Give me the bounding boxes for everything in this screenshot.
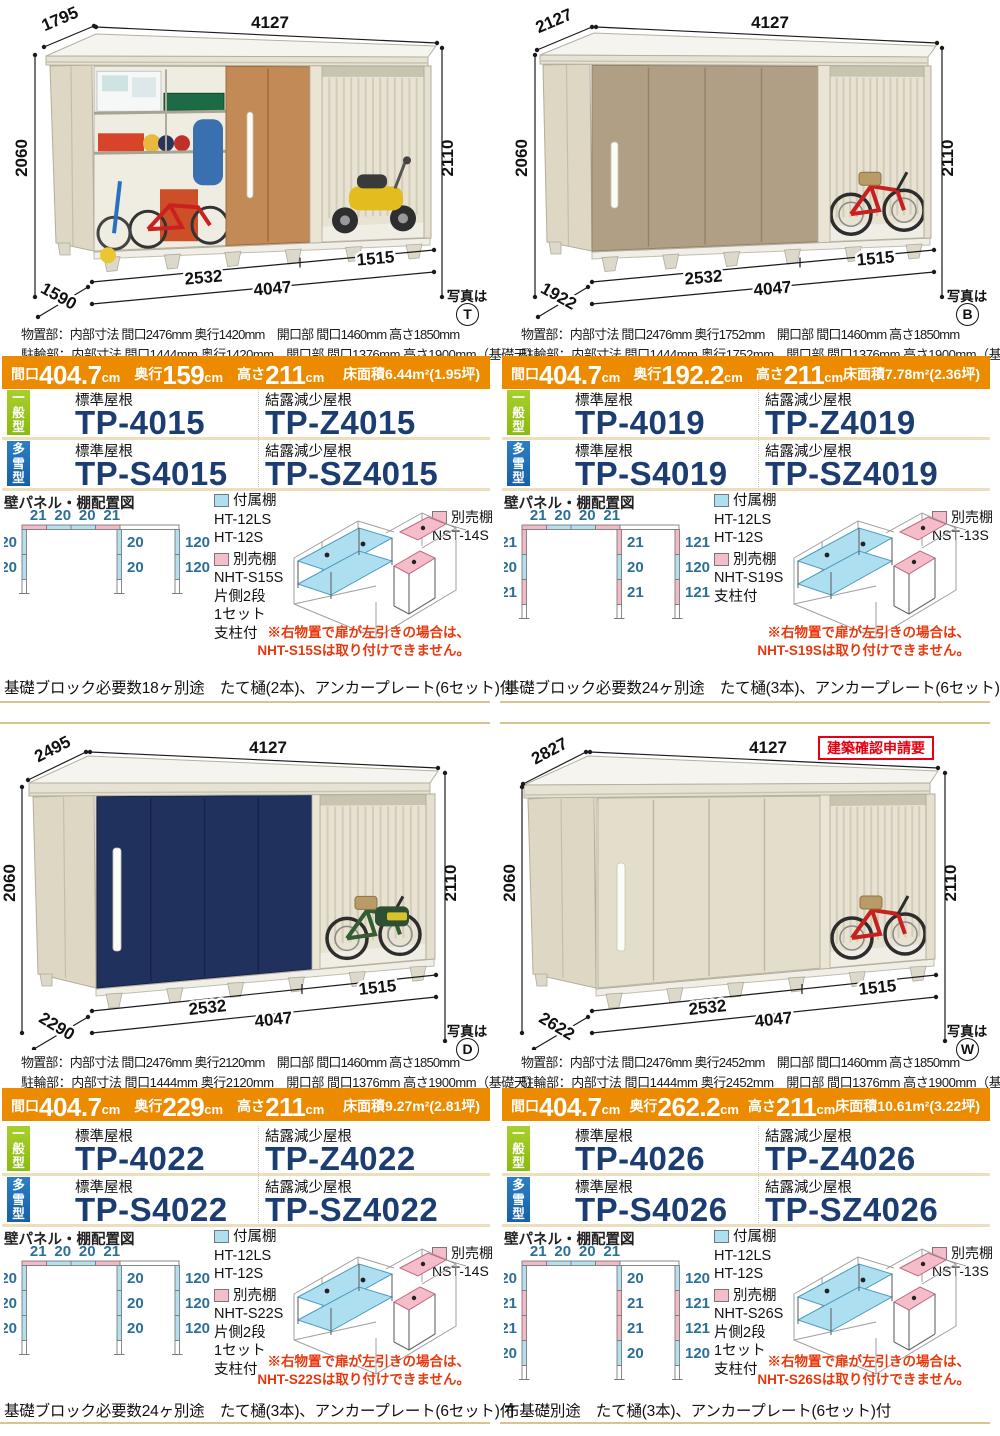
svg-text:4127: 4127 [249, 738, 287, 757]
svg-text:20: 20 [504, 1270, 517, 1287]
svg-text:4127: 4127 [251, 13, 289, 32]
svg-text:20: 20 [4, 559, 17, 576]
svg-text:1922: 1922 [538, 279, 580, 314]
svg-text:20: 20 [4, 1270, 17, 1287]
svg-text:2290: 2290 [36, 1008, 78, 1044]
svg-text:120: 120 [685, 1270, 710, 1287]
svg-text:21: 21 [627, 534, 644, 551]
svg-text:4127: 4127 [749, 738, 787, 757]
svg-text:4047: 4047 [253, 277, 292, 299]
svg-text:2532: 2532 [188, 996, 228, 1019]
svg-text:2532: 2532 [184, 266, 223, 288]
svg-text:4127: 4127 [751, 13, 789, 32]
svg-text:21: 21 [627, 1320, 644, 1337]
svg-text:2060: 2060 [500, 864, 519, 902]
svg-text:4047: 4047 [754, 1008, 794, 1031]
svg-text:21: 21 [603, 1243, 620, 1260]
svg-text:20: 20 [579, 1243, 596, 1260]
svg-text:4047: 4047 [753, 277, 792, 299]
svg-text:120: 120 [185, 534, 210, 551]
svg-text:21: 21 [530, 1243, 547, 1260]
svg-text:21: 21 [103, 507, 120, 524]
svg-text:2622: 2622 [536, 1008, 578, 1044]
svg-text:2127: 2127 [533, 5, 575, 37]
svg-text:2060: 2060 [12, 139, 31, 177]
svg-text:2060: 2060 [512, 139, 531, 177]
svg-text:121: 121 [685, 584, 710, 601]
svg-text:1795: 1795 [39, 3, 81, 35]
svg-text:120: 120 [185, 1295, 210, 1312]
svg-text:1515: 1515 [858, 976, 898, 999]
svg-text:2110: 2110 [941, 865, 960, 902]
svg-text:20: 20 [554, 507, 571, 524]
svg-text:120: 120 [185, 1270, 210, 1287]
svg-text:1515: 1515 [358, 976, 398, 999]
svg-text:2060: 2060 [0, 864, 19, 902]
svg-text:20: 20 [627, 1270, 644, 1287]
svg-text:120: 120 [185, 1320, 210, 1337]
svg-text:21: 21 [603, 507, 620, 524]
svg-text:121: 121 [685, 1320, 710, 1337]
svg-text:20: 20 [4, 534, 17, 551]
svg-text:20: 20 [54, 1243, 71, 1260]
svg-text:20: 20 [627, 1345, 644, 1362]
svg-text:21: 21 [504, 1295, 517, 1312]
svg-text:20: 20 [127, 1320, 144, 1337]
svg-text:20: 20 [504, 1345, 517, 1362]
svg-text:1590: 1590 [38, 279, 80, 314]
svg-text:2532: 2532 [684, 266, 723, 288]
svg-text:20: 20 [554, 1243, 571, 1260]
svg-text:1515: 1515 [856, 247, 895, 269]
svg-text:20: 20 [127, 1270, 144, 1287]
svg-text:2110: 2110 [441, 865, 460, 902]
svg-text:21: 21 [30, 507, 47, 524]
svg-text:21: 21 [30, 1243, 47, 1260]
svg-text:20: 20 [627, 559, 644, 576]
svg-text:21: 21 [530, 507, 547, 524]
svg-text:21: 21 [504, 584, 517, 601]
svg-text:2110: 2110 [438, 140, 457, 177]
svg-text:20: 20 [127, 1295, 144, 1312]
svg-text:20: 20 [127, 559, 144, 576]
svg-text:20: 20 [54, 507, 71, 524]
svg-text:4047: 4047 [254, 1008, 294, 1031]
svg-text:21: 21 [627, 1295, 644, 1312]
svg-text:21: 21 [504, 534, 517, 551]
svg-text:21: 21 [103, 1243, 120, 1260]
svg-text:2532: 2532 [688, 996, 728, 1019]
svg-text:20: 20 [79, 507, 96, 524]
svg-text:20: 20 [504, 559, 517, 576]
svg-text:120: 120 [185, 559, 210, 576]
svg-text:2110: 2110 [938, 140, 957, 177]
svg-text:21: 21 [627, 584, 644, 601]
svg-text:121: 121 [685, 1295, 710, 1312]
svg-text:20: 20 [579, 507, 596, 524]
svg-text:20: 20 [4, 1295, 17, 1312]
svg-text:21: 21 [504, 1320, 517, 1337]
svg-text:120: 120 [685, 559, 710, 576]
svg-text:20: 20 [79, 1243, 96, 1260]
svg-text:20: 20 [4, 1320, 17, 1337]
svg-text:20: 20 [127, 534, 144, 551]
svg-text:1515: 1515 [356, 247, 395, 269]
svg-text:121: 121 [685, 534, 710, 551]
